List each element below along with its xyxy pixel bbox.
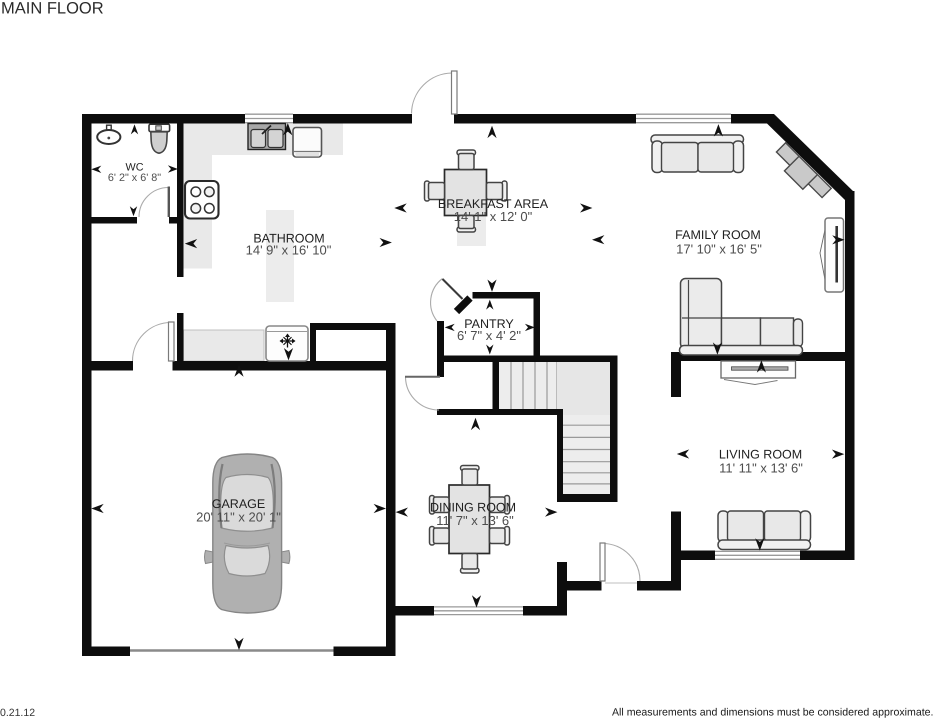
svg-text:11' 11" x 13' 6": 11' 11" x 13' 6": [719, 461, 803, 476]
svg-text:MAIN FLOOR: MAIN FLOOR: [1, 0, 104, 18]
svg-text:11' 7" x 13' 6": 11' 7" x 13' 6": [436, 513, 514, 528]
svg-text:All measurements and dimension: All measurements and dimensions must be …: [612, 707, 934, 719]
svg-text:17' 10" x 16' 5": 17' 10" x 16' 5": [676, 242, 762, 257]
svg-text:FAMILY ROOM: FAMILY ROOM: [675, 228, 761, 242]
svg-text:14' 1" x 12' 0": 14' 1" x 12' 0": [454, 209, 533, 224]
svg-text:6' 7" x 4' 2": 6' 7" x 4' 2": [457, 328, 521, 343]
svg-text:14' 9" x 16' 10": 14' 9" x 16' 10": [246, 243, 332, 258]
svg-text:0.21.12: 0.21.12: [0, 707, 35, 719]
svg-text:6' 2" x 6' 8": 6' 2" x 6' 8": [108, 172, 161, 184]
svg-text:20' 11" x 20' 1": 20' 11" x 20' 1": [196, 510, 281, 525]
svg-text:LIVING ROOM: LIVING ROOM: [719, 448, 802, 462]
